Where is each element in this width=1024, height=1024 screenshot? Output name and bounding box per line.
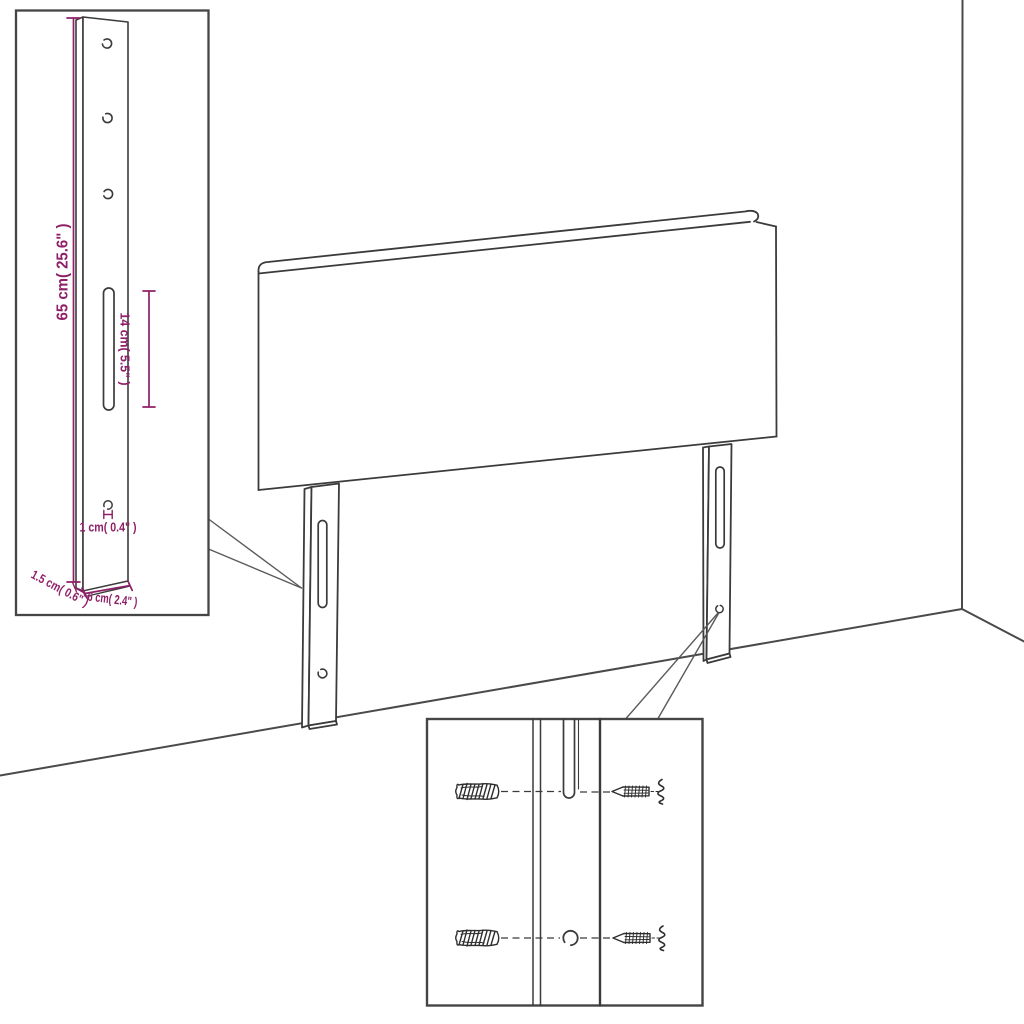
headboard-left-leg (302, 484, 339, 730)
panel-right-edge (776, 227, 777, 437)
bracket-side-face (76, 17, 83, 591)
floor-line-right (962, 609, 1024, 642)
assembly-diagram: 65 cm( 25.6" ) 14 cm( 5.5" ) 1 cm( 0.4" … (0, 0, 1024, 1024)
leader-inset-to-left-leg-1 (209, 519, 302, 588)
leader-hole-to-inset-2 (658, 614, 719, 719)
slot-dim-label: 14 cm( 5.5" ) (118, 313, 133, 386)
leader-inset-to-left-leg-2 (209, 549, 302, 588)
headboard-right-leg (703, 444, 732, 663)
hardware-inset-frame (427, 719, 703, 1006)
assembly-diagram-canvas: 65 cm( 25.6" ) 14 cm( 5.5" ) 1 cm( 0.4" … (0, 0, 1024, 1024)
headboard-panel (258, 211, 777, 491)
leg-bracket-drawing (76, 17, 130, 597)
mounting-hardware-inset (427, 719, 703, 1006)
wall-corner-line (962, 0, 963, 609)
height-dim-label: 65 cm( 25.6" ) (55, 224, 72, 321)
hole-dim-label: 1 cm( 0.4" ) (80, 520, 137, 535)
bracket-front-face (83, 17, 128, 591)
callout-leaders (209, 519, 719, 719)
panel-fill (258, 211, 777, 491)
leg-dimension-inset: 65 cm( 25.6" ) 14 cm( 5.5" ) 1 cm( 0.4" … (16, 11, 209, 616)
